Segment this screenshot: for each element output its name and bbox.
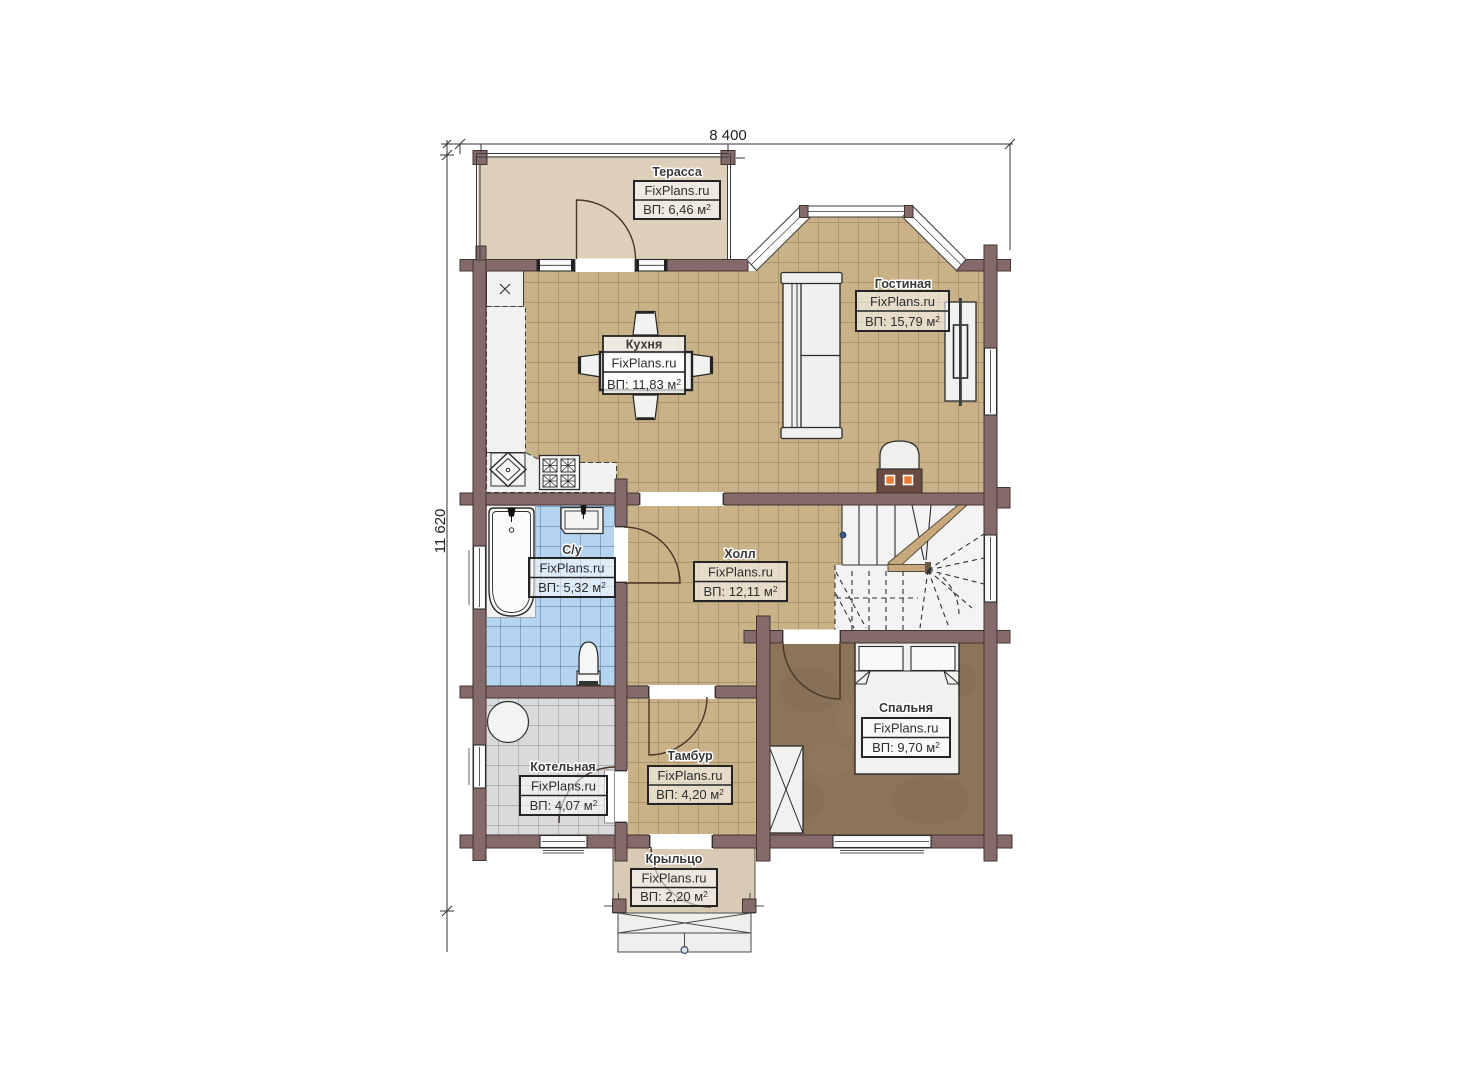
svg-text:ВП: 4,20 м2: ВП: 4,20 м2 (656, 787, 724, 802)
svg-text:FixPlans.ru: FixPlans.ru (870, 294, 935, 309)
svg-text:Крыльцо: Крыльцо (646, 852, 703, 866)
svg-text:Котельная: Котельная (530, 760, 595, 774)
svg-text:ВП: 15,79 м2: ВП: 15,79 м2 (865, 314, 940, 329)
svg-text:Холл: Холл (724, 547, 755, 561)
svg-text:FixPlans.ru: FixPlans.ru (641, 871, 706, 886)
svg-text:FixPlans.ru: FixPlans.ru (531, 778, 596, 793)
svg-text:ВП: 4,07 м2: ВП: 4,07 м2 (530, 798, 598, 813)
svg-text:Терасса: Терасса (652, 165, 703, 179)
svg-text:ВП: 5,32 м2: ВП: 5,32 м2 (538, 580, 606, 595)
svg-text:FixPlans.ru: FixPlans.ru (644, 183, 709, 198)
svg-text:8 400: 8 400 (709, 127, 747, 144)
svg-text:FixPlans.ru: FixPlans.ru (611, 356, 676, 371)
svg-text:ВП: 12,11 м2: ВП: 12,11 м2 (703, 584, 777, 599)
svg-text:FixPlans.ru: FixPlans.ru (873, 720, 938, 735)
svg-text:ВП: 6,46 м2: ВП: 6,46 м2 (643, 202, 711, 217)
svg-text:С/у: С/у (562, 543, 582, 557)
svg-text:FixPlans.ru: FixPlans.ru (657, 768, 722, 783)
svg-text:ВП: 9,70 м2: ВП: 9,70 м2 (872, 740, 940, 755)
svg-text:ВП: 11,83 м2: ВП: 11,83 м2 (607, 377, 681, 392)
svg-text:Гостиная: Гостиная (875, 277, 932, 291)
svg-text:11 620: 11 620 (432, 509, 449, 554)
svg-text:Кухня: Кухня (626, 338, 663, 352)
svg-text:Спальня: Спальня (879, 701, 933, 715)
svg-text:Тамбур: Тамбур (667, 749, 713, 763)
svg-text:FixPlans.ru: FixPlans.ru (708, 564, 773, 579)
svg-text:ВП: 2,20 м2: ВП: 2,20 м2 (640, 889, 708, 904)
svg-text:FixPlans.ru: FixPlans.ru (539, 560, 604, 575)
